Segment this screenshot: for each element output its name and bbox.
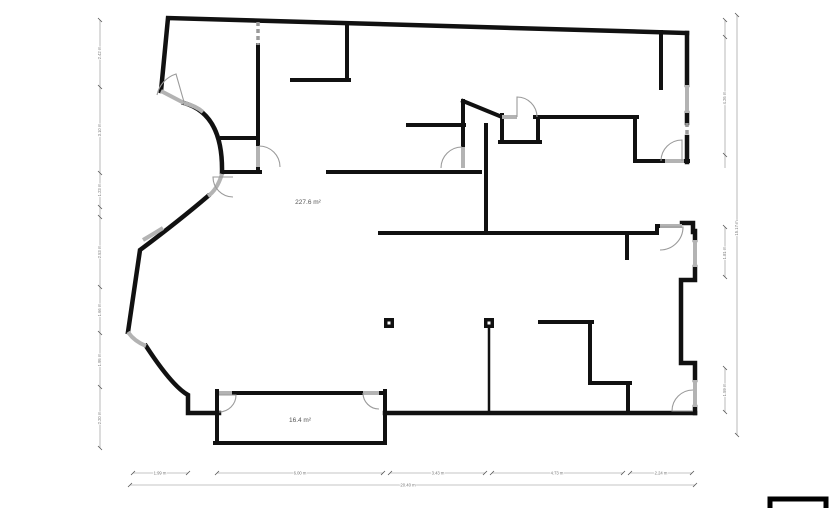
- door-arc: [660, 227, 683, 250]
- wall-top-and-left-slant: [161, 18, 687, 91]
- dim-label-right-2: 1.81 m: [722, 246, 727, 259]
- small-room-walls: [222, 138, 260, 172]
- door-opening: [161, 91, 184, 103]
- box-room-walls: [500, 115, 540, 142]
- window-segment: [128, 332, 146, 346]
- door-arc: [661, 140, 682, 161]
- door-arc: [259, 146, 280, 167]
- dim-label-left-1: 2.42 m: [97, 46, 102, 59]
- wall-curve-lower: [146, 346, 219, 413]
- door-arc: [219, 395, 236, 412]
- wall-y233: [380, 226, 660, 233]
- column-core: [488, 322, 491, 325]
- openings: [128, 22, 695, 407]
- wall-curve-mid: [128, 196, 208, 332]
- dim-label-left-5: 1.66 m: [97, 303, 102, 316]
- floorplan-page: 227.6 m² 16.4 m² 1.99 m 6.00 m 3.43 m 4.…: [0, 0, 836, 508]
- dim-label-right-total: 15.17 m: [734, 220, 739, 236]
- dimension-lines: [98, 13, 739, 487]
- dim-label-bottom-1: 1.99 m: [154, 471, 167, 476]
- dim-label-right-3: 1.59 m: [722, 383, 727, 396]
- walls-bottom-right-interior: [540, 322, 630, 413]
- dim-label-bottom-5: 2.24 m: [655, 471, 668, 476]
- wall-corner-ne-mid: [682, 223, 693, 232]
- dim-label-left-4: 2.53 m: [97, 245, 102, 258]
- door-arc: [672, 390, 693, 411]
- wall-x347-L: [292, 23, 349, 80]
- wall-east-lower: [681, 231, 695, 413]
- column-core: [388, 322, 391, 325]
- door-arc: [363, 393, 379, 409]
- interior-walls: [215, 23, 688, 443]
- dim-label-bottom-total: 20.40 m: [400, 483, 416, 488]
- dim-label-right-1: 4.26 m: [722, 91, 727, 104]
- window-segment: [184, 103, 203, 112]
- door-arc: [441, 147, 462, 168]
- area-label-room: 16.4 m²: [289, 417, 312, 424]
- dim-label-left-3: 1.23 m: [97, 183, 102, 196]
- floorplan-canvas: 227.6 m² 16.4 m² 1.99 m 6.00 m 3.43 m 4.…: [0, 0, 836, 508]
- dim-label-bottom-2: 6.00 m: [294, 471, 307, 476]
- dim-label-bottom-3: 3.43 m: [432, 471, 445, 476]
- dimension-labels: 1.99 m 6.00 m 3.43 m 4.73 m 2.24 m 20.40…: [97, 46, 739, 487]
- wall-curve-upper: [184, 103, 222, 172]
- exterior-walls: [128, 18, 695, 413]
- door-arc: [517, 97, 537, 117]
- dim-label-left-7: 2.20 m: [97, 411, 102, 424]
- dim-label-left-6: 1.95 m: [97, 353, 102, 366]
- columns: [384, 318, 494, 328]
- logo-box: [770, 499, 826, 508]
- dim-label-bottom-4: 4.73 m: [551, 471, 564, 476]
- door-arc: [213, 177, 233, 197]
- dim-label-left-2: 3.10 m: [97, 123, 102, 136]
- wall-slant-box: [463, 101, 502, 117]
- area-label-main: 227.6 m²: [295, 199, 321, 206]
